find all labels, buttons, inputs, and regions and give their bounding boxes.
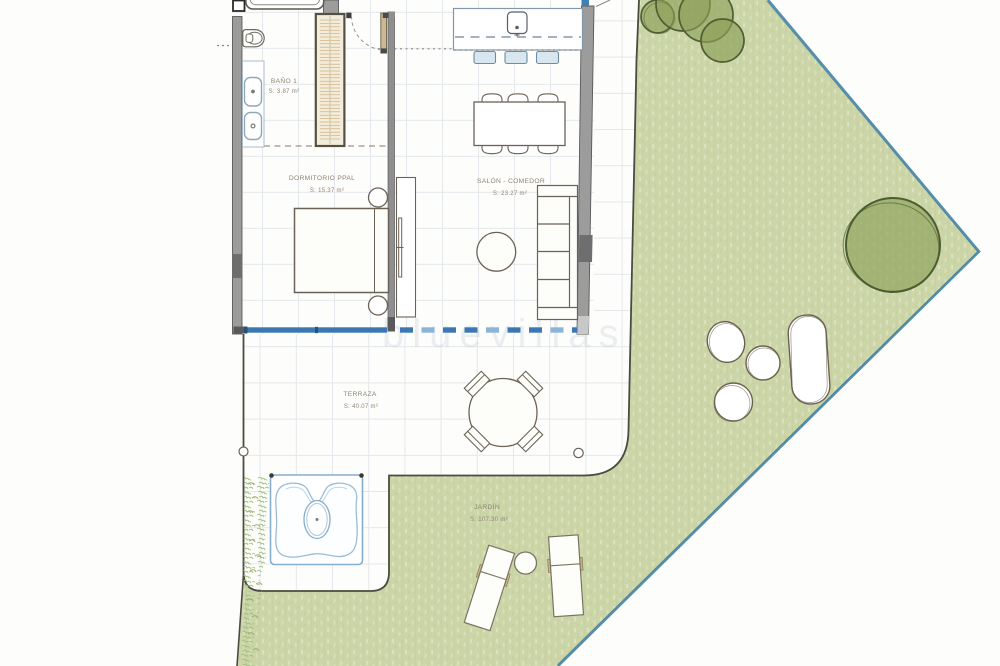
- svg-text:BAÑO 1: BAÑO 1: [271, 76, 297, 85]
- svg-text:bluevillas: bluevillas: [382, 312, 627, 356]
- svg-text:TERRAZA: TERRAZA: [343, 391, 377, 398]
- svg-text:S: 107.30 m²: S: 107.30 m²: [470, 517, 508, 523]
- svg-text:S: 40.07 m²: S: 40.07 m²: [344, 404, 378, 410]
- svg-text:JARDÍN: JARDÍN: [474, 502, 500, 511]
- svg-text:S: 23.27 m²: S: 23.27 m²: [493, 191, 527, 197]
- svg-text:S: 15.37 m²: S: 15.37 m²: [310, 188, 344, 194]
- svg-text:SALÓN - COMEDOR: SALÓN - COMEDOR: [477, 176, 545, 185]
- svg-text:DORMITORIO PPAL: DORMITORIO PPAL: [289, 175, 355, 182]
- svg-text:S: 3.87 m²: S: 3.87 m²: [269, 89, 300, 95]
